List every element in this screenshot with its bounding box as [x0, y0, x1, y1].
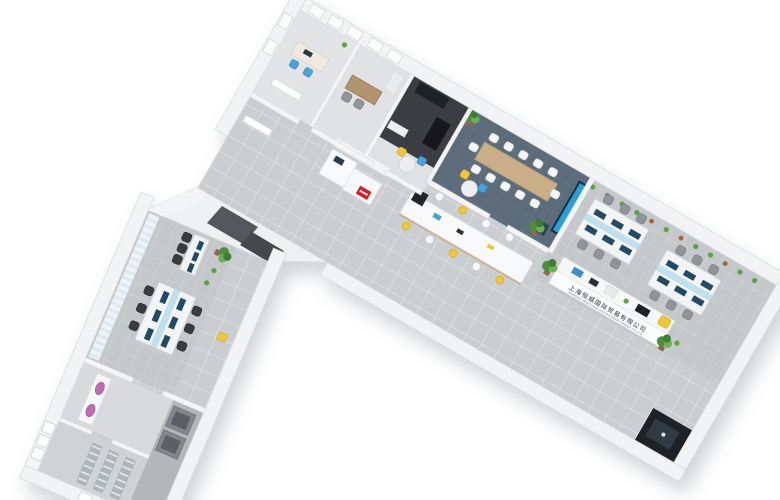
floorplan-render: 上海恒城国际贸易有限公司 SHANGHAI HENGCHENG INTERNAT… [0, 0, 780, 500]
floorplan-svg: 上海恒城国际贸易有限公司 SHANGHAI HENGCHENG INTERNAT… [0, 0, 780, 500]
building: 上海恒城国际贸易有限公司 SHANGHAI HENGCHENG INTERNAT… [19, 0, 780, 500]
